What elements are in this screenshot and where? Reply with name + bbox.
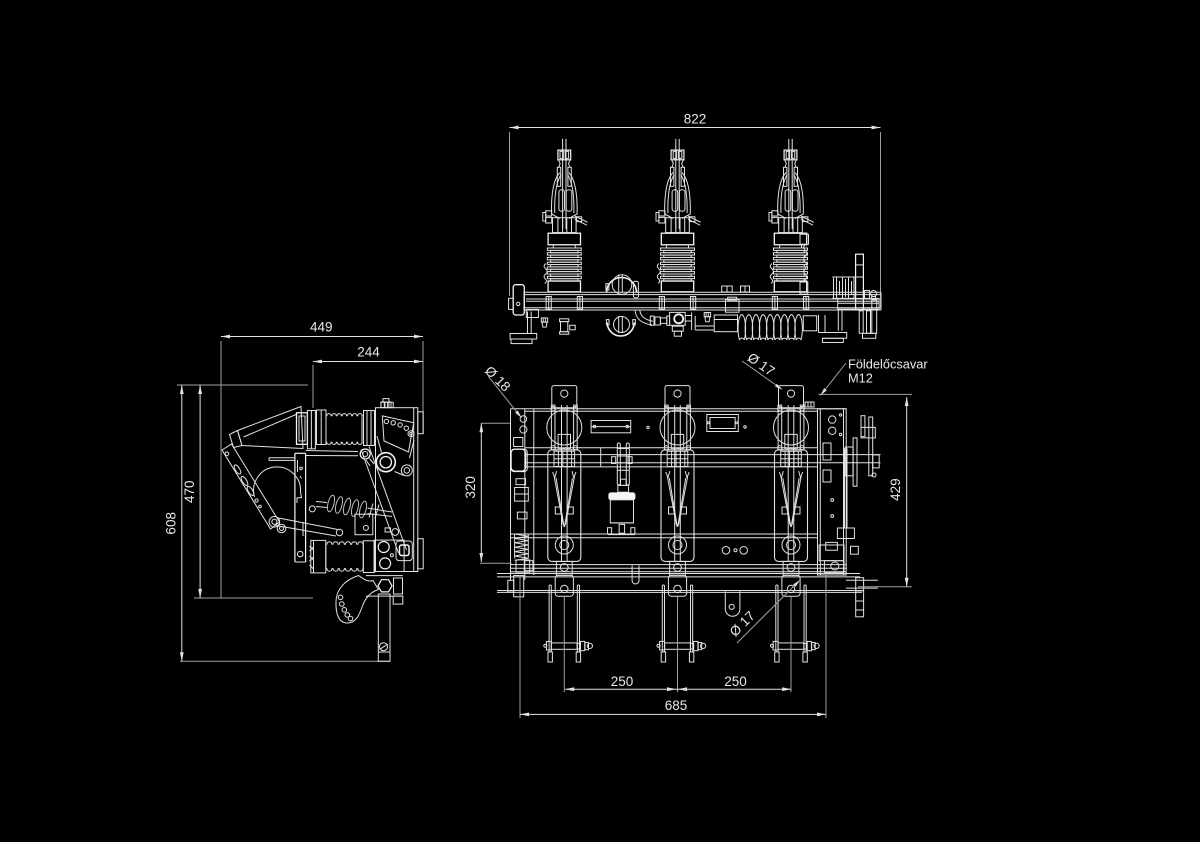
svg-text:470: 470 [182,480,197,503]
svg-text:M12: M12 [848,371,873,386]
svg-text:250: 250 [724,674,747,689]
svg-text:449: 449 [310,320,333,335]
svg-text:320: 320 [463,476,478,499]
svg-text:244: 244 [357,345,380,360]
svg-text:608: 608 [163,512,178,535]
svg-text:685: 685 [665,698,688,713]
svg-text:Földelőcsavar: Földelőcsavar [848,357,928,372]
svg-text:250: 250 [611,674,634,689]
svg-text:822: 822 [684,112,707,127]
svg-text:429: 429 [888,478,903,501]
